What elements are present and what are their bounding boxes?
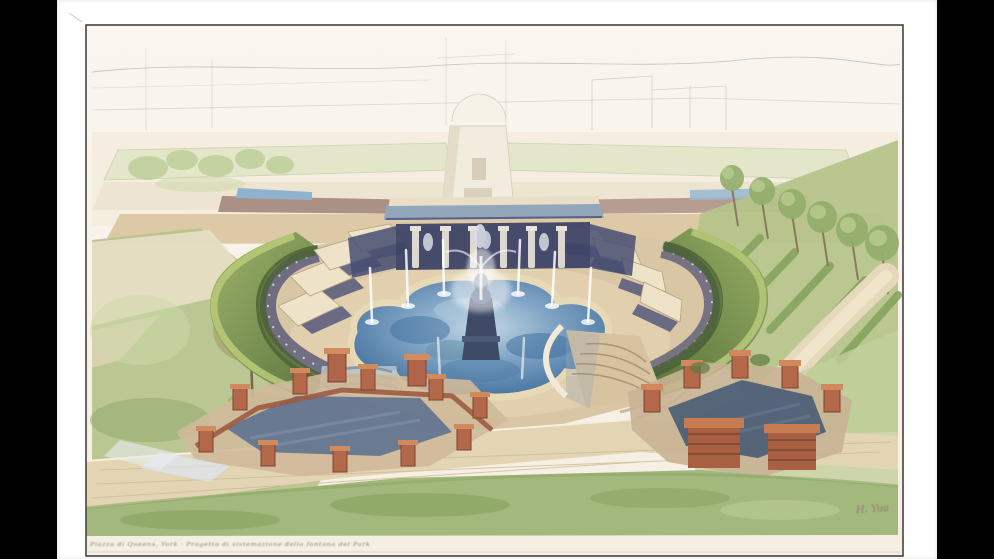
planting-tuft xyxy=(690,362,710,374)
pencil-tick xyxy=(69,13,82,22)
planting-tuft xyxy=(750,354,770,366)
lawn-wash xyxy=(90,295,190,365)
shrub-wash xyxy=(155,176,245,192)
monument-niche xyxy=(472,158,486,180)
artist-signature: H. Yua xyxy=(856,503,890,516)
scanned-artwork-frame: Piazza di Queens, York · Progetto di sis… xyxy=(0,0,994,559)
watercolor-rendering xyxy=(0,0,994,559)
handwritten-caption: Piazza di Queens, York · Progetto di sis… xyxy=(90,540,370,547)
